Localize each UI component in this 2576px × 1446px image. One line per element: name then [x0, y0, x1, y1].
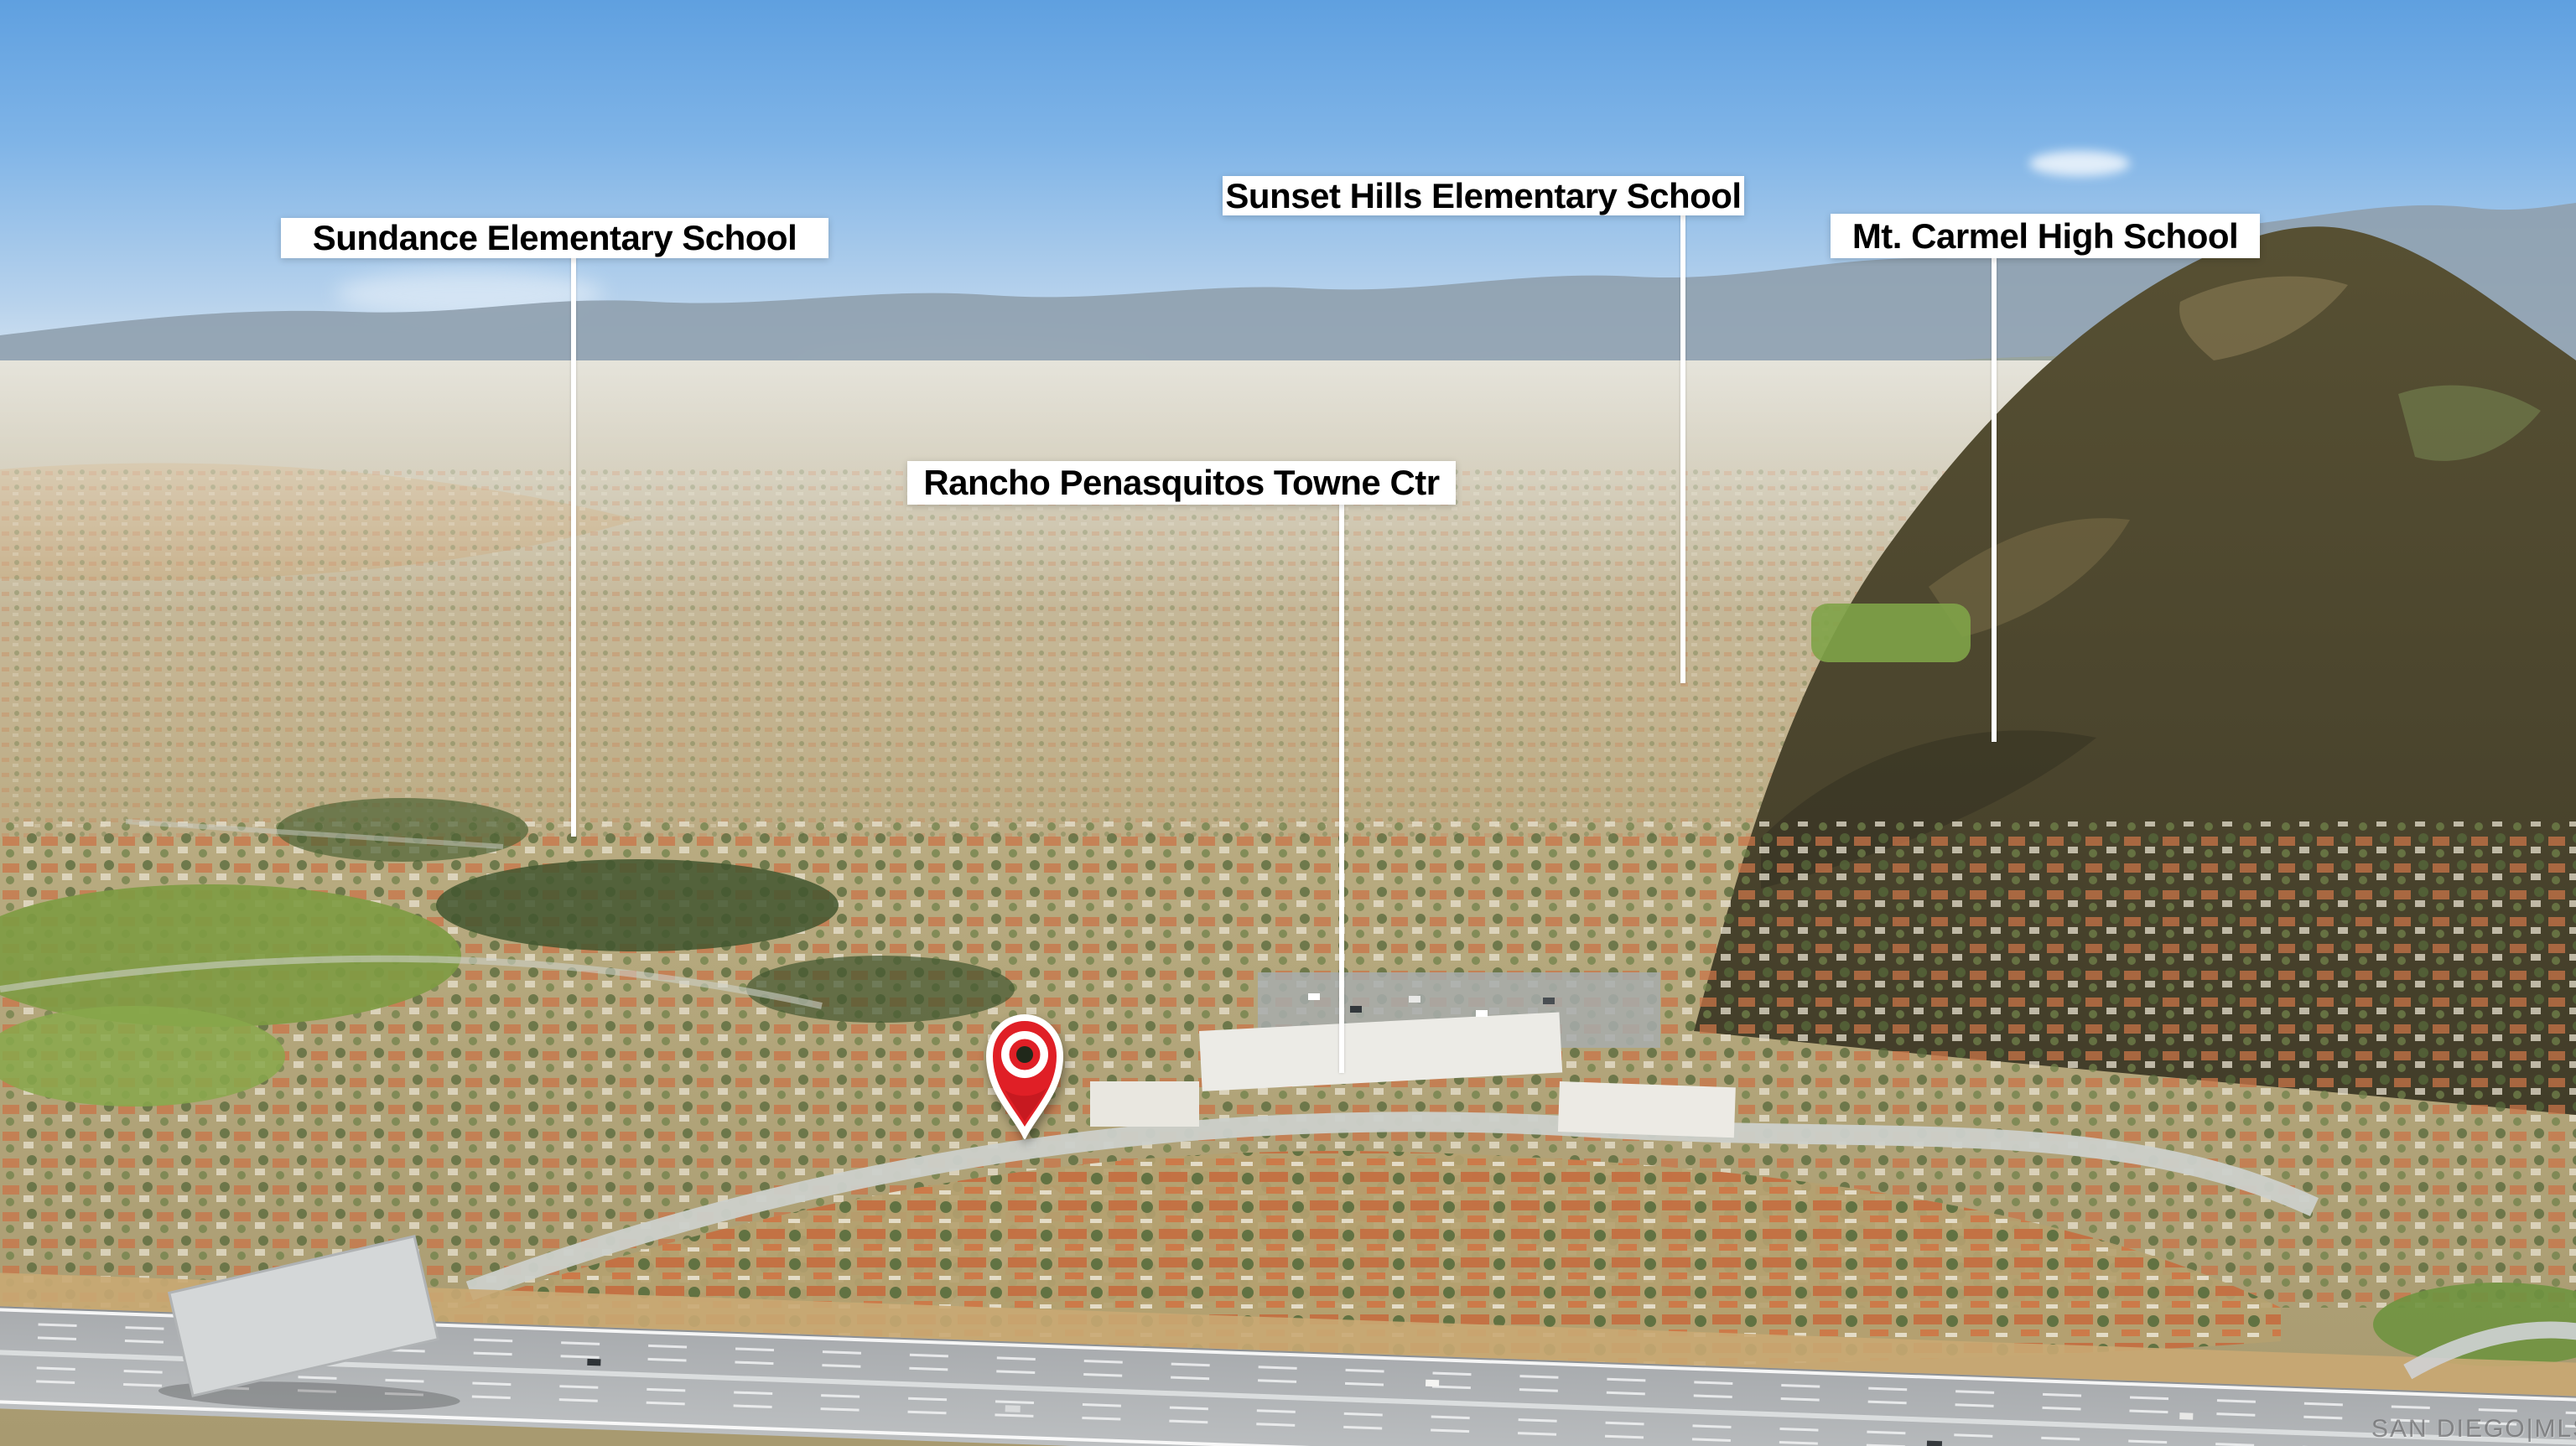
label-rancho-penasquitos-towne-ctr: Rancho Penasquitos Towne Ctr: [907, 461, 1456, 505]
leader-line-sundance: [571, 258, 576, 837]
leader-line-sunset-hills: [1680, 215, 1685, 683]
leader-line-mt-carmel: [1992, 258, 1997, 742]
label-mt-carmel-high-school: Mt. Carmel High School: [1831, 214, 2260, 258]
leader-line-towne-ctr: [1339, 505, 1344, 1073]
label-sundance-elementary-school: Sundance Elementary School: [281, 218, 828, 258]
mls-watermark: SAN DIEGO|MLS: [2371, 1415, 2576, 1443]
map-pin-center-dot: [1016, 1046, 1033, 1063]
aerial-listing-photo: Sundance Elementary School Sunset Hills …: [0, 0, 2576, 1446]
label-sunset-hills-elementary-school: Sunset Hills Elementary School: [1223, 176, 1744, 215]
map-pin-icon: [979, 1009, 1070, 1139]
